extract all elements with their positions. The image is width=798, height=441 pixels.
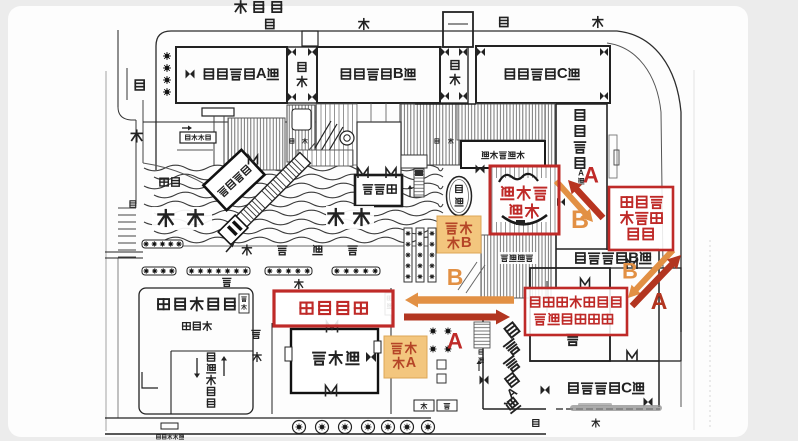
svg-text:C: C <box>557 66 568 82</box>
svg-text:B: B <box>447 264 464 290</box>
svg-text:B: B <box>461 235 472 251</box>
svg-text:A: A <box>583 163 599 188</box>
svg-text:B: B <box>622 259 638 284</box>
svg-text:A: A <box>651 288 668 314</box>
svg-text:A: A <box>447 329 463 354</box>
svg-text:A: A <box>256 66 267 82</box>
svg-text:B: B <box>571 206 589 234</box>
svg-text:A: A <box>406 355 417 371</box>
svg-text:C: C <box>621 380 632 397</box>
svg-text:B: B <box>393 66 404 82</box>
